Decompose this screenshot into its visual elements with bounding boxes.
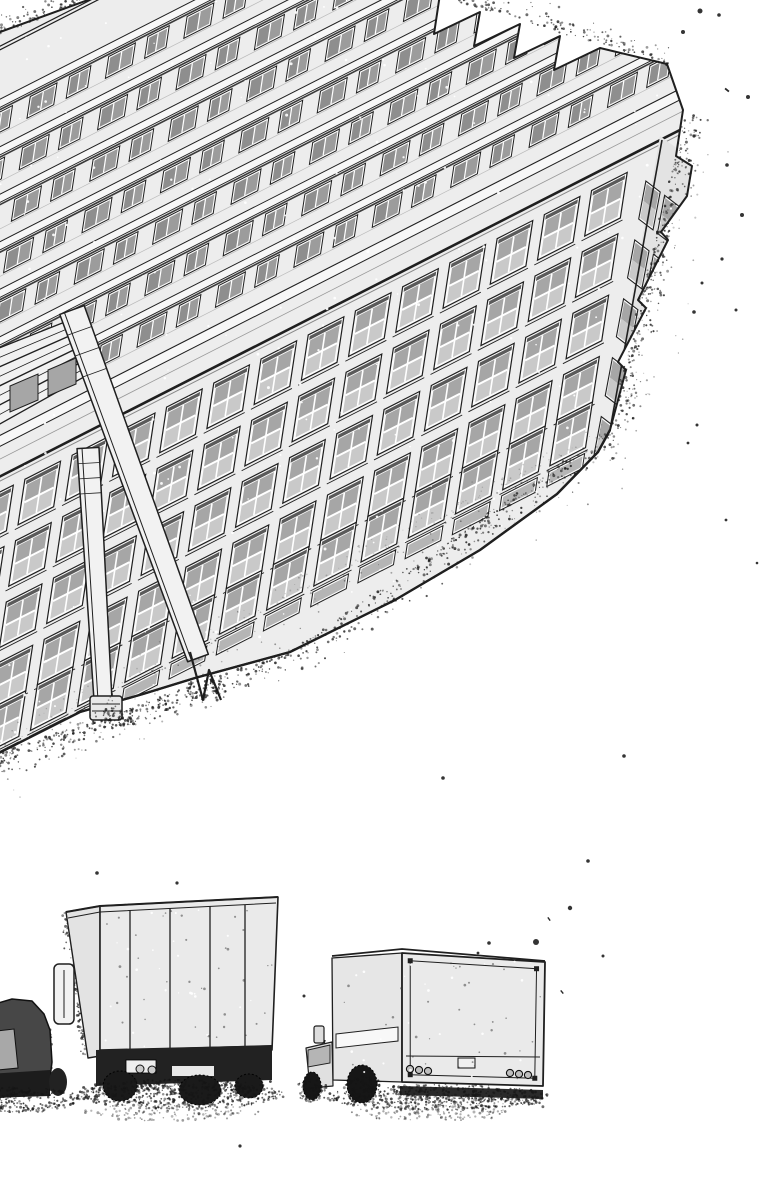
box-truck-rear-left — [54, 897, 278, 1105]
box-truck-rear-right — [303, 949, 545, 1103]
vehicles — [0, 897, 545, 1105]
building — [0, 0, 764, 933]
scene-svg — [0, 0, 764, 1200]
manga-panel — [0, 0, 764, 1200]
